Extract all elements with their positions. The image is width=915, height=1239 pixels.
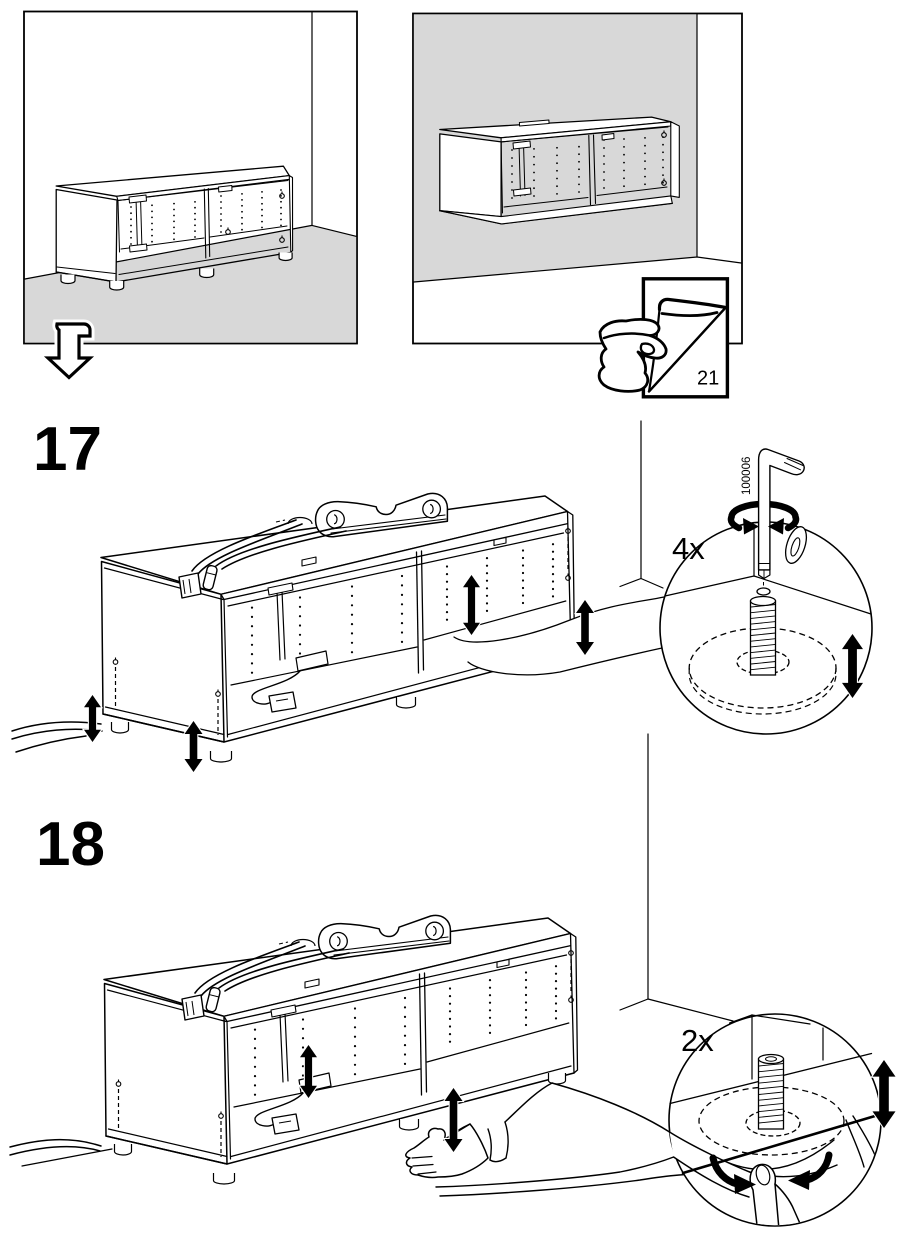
svg-text:4x: 4x	[672, 531, 705, 566]
svg-text:2x: 2x	[681, 1023, 714, 1058]
svg-text:21: 21	[697, 368, 719, 390]
svg-text:100006: 100006	[741, 457, 753, 495]
svg-text:17: 17	[33, 415, 102, 484]
svg-text:18: 18	[36, 810, 105, 879]
